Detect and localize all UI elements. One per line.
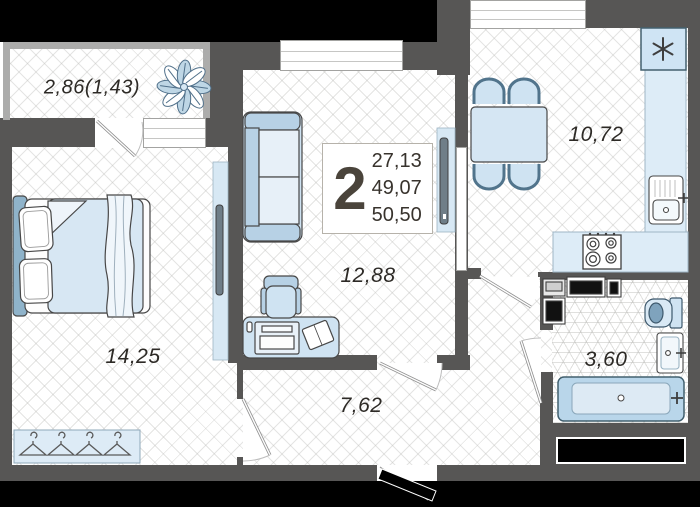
balcony-glazing bbox=[203, 42, 210, 118]
wall-niche bbox=[456, 147, 467, 271]
rooms-count: 2 bbox=[333, 162, 364, 216]
area-values: 27,13 49,07 50,50 bbox=[372, 148, 422, 229]
wall bbox=[0, 118, 12, 481]
bedroom-balcony-window bbox=[143, 118, 206, 148]
balcony-area-label: 2,86(1,43) bbox=[44, 77, 140, 100]
wall bbox=[237, 457, 243, 467]
living-room-window bbox=[280, 40, 403, 71]
kitchen-window bbox=[470, 0, 586, 29]
wall bbox=[688, 28, 700, 481]
kitchen-area-label: 10,72 bbox=[568, 123, 623, 147]
hallway-area-label: 7,62 bbox=[340, 394, 383, 418]
balcony-glazing bbox=[3, 42, 10, 120]
wall bbox=[465, 268, 481, 279]
ventilation-shaft bbox=[556, 437, 686, 464]
living-area-value: 27,13 bbox=[372, 148, 422, 175]
outside-area bbox=[0, 481, 700, 507]
balcony-door-opening bbox=[95, 118, 143, 148]
wall bbox=[243, 40, 280, 70]
wall bbox=[540, 272, 553, 330]
bathroom-area-label: 3,60 bbox=[585, 348, 628, 372]
floor-plan: 2,86(1,43) 14,25 12,88 10,72 7,62 3,60 2… bbox=[0, 0, 700, 507]
wall bbox=[237, 355, 377, 370]
living-room-area-label: 12,88 bbox=[340, 264, 395, 288]
apartment-area-value: 49,07 bbox=[372, 175, 422, 202]
apartment-info-box: 2 27,13 49,07 50,50 bbox=[322, 143, 433, 234]
wall bbox=[0, 465, 377, 481]
wall bbox=[437, 355, 470, 370]
wall bbox=[437, 465, 553, 481]
wall bbox=[585, 0, 700, 28]
balcony-glazing bbox=[3, 42, 210, 49]
total-area-value: 50,50 bbox=[372, 202, 422, 229]
bedroom-area-label: 14,25 bbox=[105, 345, 160, 369]
wall bbox=[538, 272, 688, 280]
entrance-door-opening bbox=[377, 465, 437, 481]
outside-area bbox=[0, 0, 437, 42]
wall bbox=[0, 118, 95, 147]
wall bbox=[228, 118, 243, 363]
